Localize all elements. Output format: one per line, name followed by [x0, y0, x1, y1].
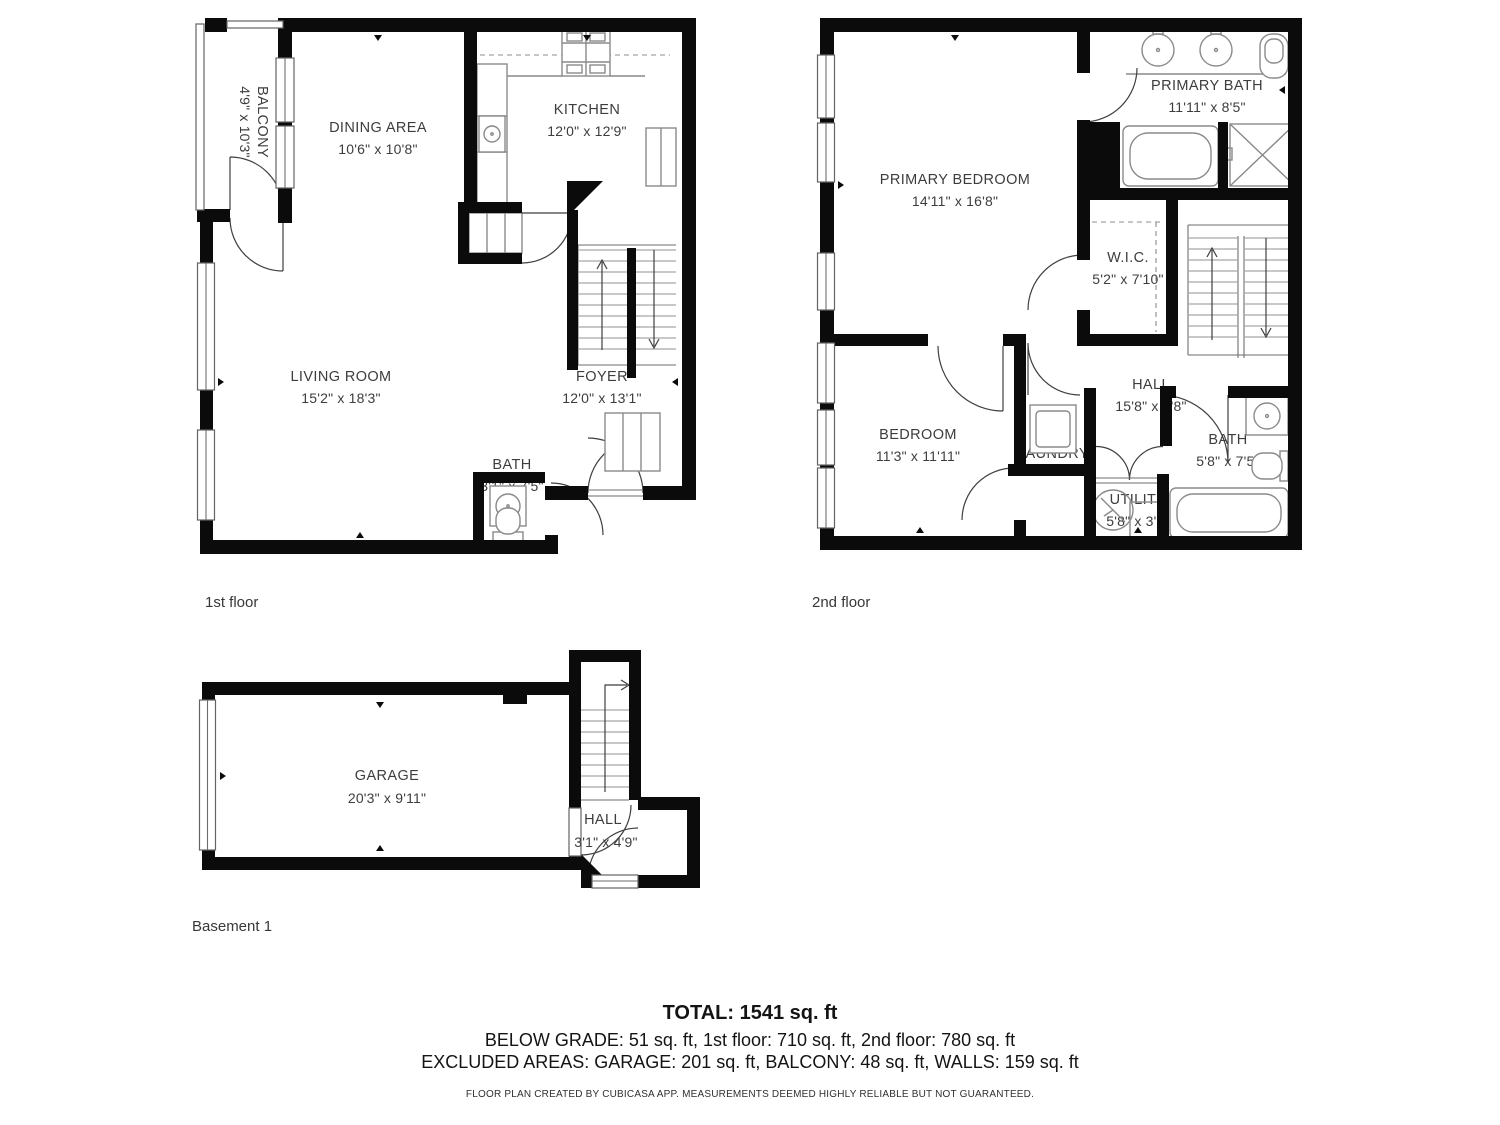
room-label: BATH	[492, 457, 531, 473]
foyer-closet	[605, 413, 660, 471]
room-dims: 12'0" x 13'1"	[562, 390, 641, 406]
toilet-icon	[1260, 34, 1288, 78]
room-dims: 4'9" x 10'3"	[237, 86, 253, 157]
sink-icon	[1200, 34, 1232, 66]
room-label: PRIMARY BATH	[1151, 78, 1263, 94]
bathtub-icon	[1123, 126, 1218, 186]
room-label: PRIMARY BEDROOM	[880, 172, 1031, 188]
sink-icon	[479, 116, 505, 152]
floor-label-basement: Basement 1	[192, 918, 272, 935]
floorplan-2nd-floor: PRIMARY BEDROOM 14'11" x 16'8" PRIMARY B…	[808, 10, 1310, 555]
balcony-door-arcs	[230, 157, 283, 271]
room-label: W.I.C.	[1107, 250, 1149, 266]
sink-icon	[1142, 34, 1174, 66]
room-dims: 15'8" x 8'8"	[1115, 398, 1186, 414]
room-dims: 5'2" x 7'10"	[1092, 271, 1163, 287]
laundry	[1028, 343, 1080, 453]
door-arc	[1083, 68, 1137, 122]
disclaimer-text: FLOOR PLAN CREATED BY CUBICASA APP. MEAS…	[0, 1089, 1500, 1100]
shower-icon	[1226, 124, 1295, 186]
room-label: FOYER	[576, 369, 628, 385]
entry-threshold	[588, 490, 643, 496]
room-dims: 12'0" x 12'9"	[547, 123, 626, 139]
room-labels-1st-floor: BALCONY 4'9" x 10'3" DINING AREA 10'6" x…	[237, 86, 642, 494]
pantry-closet	[469, 213, 522, 253]
door-arc	[1028, 255, 1083, 310]
room-dims: 20'3" x 9'11"	[348, 790, 426, 806]
floorplan-page: BALCONY 4'9" x 10'3" DINING AREA 10'6" x…	[0, 0, 1500, 1125]
room-dims: 14'11" x 16'8"	[912, 193, 998, 209]
room-label: KITCHEN	[554, 102, 620, 118]
stairs-down-arrow	[649, 250, 659, 348]
floor-label-2nd: 2nd floor	[812, 594, 870, 611]
room-label: BEDROOM	[879, 427, 957, 443]
room-dims: 15'2" x 18'3"	[301, 390, 380, 406]
room-label: HALL	[584, 812, 622, 828]
walls	[202, 650, 700, 888]
walls: 3'7" x 3'2"	[820, 18, 1302, 550]
floor-areas-text: BELOW GRADE: 51 sq. ft, 1st floor: 710 s…	[0, 1030, 1500, 1051]
floorplan-basement: GARAGE 20'3" x 9'11"	[190, 640, 705, 905]
floorplan-1st-floor: BALCONY 4'9" x 10'3" DINING AREA 10'6" x…	[190, 10, 705, 560]
door-arc	[522, 213, 572, 263]
room-dims: 3'1" x 4'9"	[574, 834, 637, 850]
balcony-rail	[227, 21, 283, 28]
stairs-icon	[1188, 225, 1288, 358]
double-door-arc	[1096, 447, 1130, 481]
hall-label: HALL 3'1" x 4'9"	[574, 812, 637, 850]
balcony-rail	[196, 24, 204, 210]
room-label: BALCONY	[254, 86, 270, 158]
stairs-icon	[581, 680, 629, 800]
room-labels-basement: GARAGE 20'3" x 9'11"	[348, 768, 426, 806]
total-area-text: TOTAL: 1541 sq. ft	[0, 1002, 1500, 1025]
room-label: GARAGE	[355, 768, 419, 784]
room-dims: 11'3" x 11'11"	[876, 448, 960, 464]
bath-fixtures	[490, 486, 526, 541]
stairs-up-arrow	[605, 680, 629, 792]
room-dims: 10'6" x 10'8"	[338, 141, 417, 157]
stairs-down-arrow	[1261, 238, 1271, 337]
room-label: LIVING ROOM	[290, 369, 391, 385]
room-dims: 11'11" x 8'5"	[1168, 99, 1245, 115]
floor-label-1st: 1st floor	[205, 594, 258, 611]
fridge-icon	[646, 128, 676, 186]
excluded-areas-text: EXCLUDED AREAS: GARAGE: 201 sq. ft, BALC…	[0, 1052, 1500, 1073]
door-arc	[1028, 343, 1080, 395]
windows	[818, 55, 835, 528]
room-label: DINING AREA	[329, 120, 427, 136]
walls	[197, 18, 696, 554]
